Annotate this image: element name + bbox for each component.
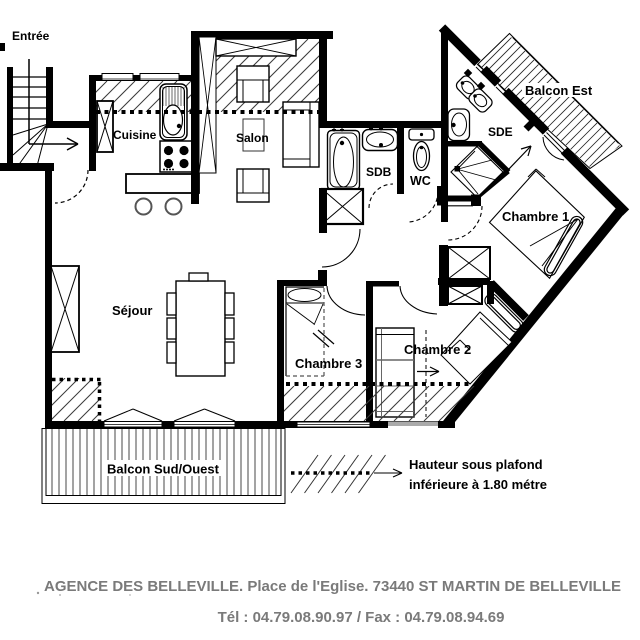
svg-text:Chambre 2: Chambre 2: [404, 342, 471, 357]
svg-text:Hauteur sous plafond: Hauteur sous plafond: [409, 457, 543, 472]
svg-text:Entrée: Entrée: [12, 29, 50, 43]
svg-text:SDE: SDE: [488, 125, 513, 139]
svg-text:SDB: SDB: [366, 165, 392, 179]
svg-text:Séjour: Séjour: [112, 303, 152, 318]
svg-text:Balcon Est: Balcon Est: [525, 83, 593, 98]
svg-text:Balcon Sud/Ouest: Balcon Sud/Ouest: [107, 462, 220, 477]
svg-text:Chambre 3: Chambre 3: [295, 356, 362, 371]
svg-text:Salon: Salon: [236, 131, 269, 145]
svg-text:Tél : 04.79.08.90.97 / Fax : 0: Tél : 04.79.08.90.97 / Fax : 04.79.08.94…: [218, 609, 505, 626]
svg-text:inférieure à 1.80 métre: inférieure à 1.80 métre: [409, 477, 547, 492]
svg-text:Chambre 1: Chambre 1: [502, 209, 569, 224]
svg-text:Cuisine: Cuisine: [113, 128, 157, 142]
svg-text:AGENCE DES BELLEVILLE. Place d: AGENCE DES BELLEVILLE. Place de l'Eglise…: [44, 578, 621, 595]
svg-text:WC: WC: [410, 174, 431, 188]
